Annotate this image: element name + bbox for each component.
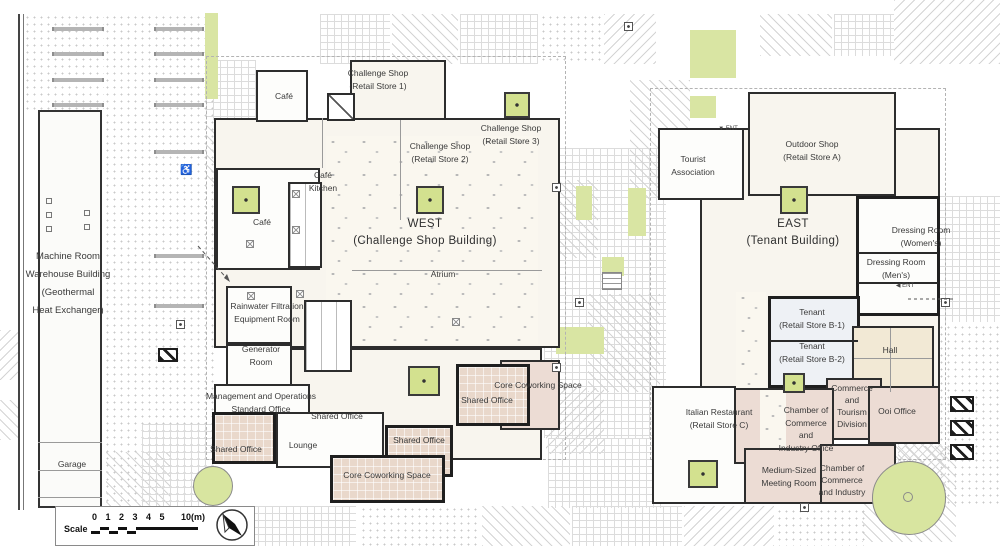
column-marker [941, 298, 950, 307]
hatched-box [950, 396, 974, 412]
room-label-cafe-top: Café [259, 90, 309, 103]
east-dressing-partition [858, 252, 938, 254]
room-label-east-title: EAST (Tenant Building) [713, 216, 873, 250]
texture-bottom-band [776, 508, 866, 546]
room-label-machine-room: Machine Room Warehouse Building (Geother… [8, 248, 128, 320]
column-marker [624, 22, 633, 31]
room-label-shared-office-a: Shared Office [297, 410, 377, 423]
room-label-garage: Garage [47, 458, 97, 471]
room-label-core-coworking-top: Core Coworking Space [483, 379, 593, 392]
room-label-tenant-b2: Tenant (Retail Store B-2) [757, 340, 867, 366]
hatched-box [950, 420, 974, 436]
room-label-ooi-office: Ooi Office [862, 405, 932, 418]
north-arrow-icon [212, 505, 252, 545]
vent-marker [292, 226, 300, 234]
accessible-parking-icon: ♿ [180, 165, 192, 176]
warehouse-door-mark [46, 198, 52, 204]
texture-bottom-band [482, 506, 570, 546]
column-marker [176, 320, 185, 329]
planter-box [783, 373, 805, 393]
tree-circle [193, 466, 233, 506]
warehouse-door-mark [84, 210, 90, 216]
warehouse-door-mark [46, 212, 52, 218]
room-label-tenant-b1: Tenant (Retail Store B-1) [757, 306, 867, 332]
planting-area [576, 186, 592, 220]
texture-bottom-band [684, 506, 774, 546]
column-marker [575, 298, 584, 307]
room-label-challenge-shop-1: Challenge Shop (Retail Store 1) [328, 67, 428, 93]
warehouse-partition [38, 442, 102, 443]
vent-marker [452, 318, 460, 326]
texture-bottom-band [572, 506, 682, 546]
planter-box [688, 460, 718, 488]
column-marker [552, 183, 561, 192]
room-label-hall: Hall [865, 344, 915, 357]
corridor-stairs [602, 272, 622, 290]
texture-plaza [760, 14, 832, 56]
parking-stall [52, 78, 104, 82]
room-label-dressing-men: Dressing Room (Men's) [846, 256, 946, 282]
parking-stall [52, 52, 104, 56]
vent-marker [247, 292, 255, 300]
texture-bottom-band [360, 506, 480, 546]
planter-box [408, 366, 440, 396]
west-shared-office-left [212, 412, 276, 464]
column-marker [552, 363, 561, 372]
parking-stall [154, 52, 204, 56]
room-label-cafe-kitchen: Café Kitchen [293, 169, 353, 195]
scale-segment [118, 527, 127, 530]
planter-box [504, 92, 530, 118]
vent-marker [296, 290, 304, 298]
planter-box [232, 186, 260, 214]
planter-box [780, 186, 808, 214]
texture-plaza [894, 0, 1000, 64]
parking-stall [154, 103, 204, 107]
warehouse-door-mark [46, 226, 52, 232]
scale-segment [100, 527, 109, 530]
room-label-rainwater: Rainwater Filtration Equipment Room [207, 300, 327, 326]
scale-max-label: 10(m) [181, 512, 205, 522]
west-partition [322, 118, 323, 168]
room-label-outdoor-shop: Outdoor Shop (Retail Store A) [757, 138, 867, 164]
parking-stall [154, 150, 204, 154]
warehouse-door-mark [84, 224, 90, 230]
room-label-dressing-women: Dressing Room (Women's) [871, 224, 971, 250]
parking-stall [154, 27, 204, 31]
scale-segment [127, 531, 136, 534]
warehouse-partition [38, 497, 102, 498]
room-label-west-title: WEST (Challenge Shop Building) [335, 216, 515, 250]
room-label-challenge-shop-3: Challenge Shop (Retail Store 3) [456, 122, 566, 148]
room-label-cafe-left: Café [237, 216, 287, 229]
hatched-box [158, 348, 178, 362]
planter-box [416, 186, 444, 214]
parking-stall [154, 304, 204, 308]
vent-marker [246, 240, 254, 248]
texture-plaza [834, 14, 894, 56]
planting-area [628, 188, 646, 236]
room-label-chamber-2: Chamber of Commerce and Industry [792, 462, 892, 498]
parking-stall [52, 103, 104, 107]
column-marker [800, 503, 809, 512]
room-label-lounge: Lounge [273, 439, 333, 452]
west-skylight-box [327, 93, 355, 121]
room-label-core-coworking-bottom: Core Coworking Space [327, 469, 447, 482]
room-label-shared-office-left: Shared Office [196, 443, 276, 456]
entrance-label: ▼ ENT [716, 126, 740, 133]
tree-center-mark [903, 492, 913, 502]
scale-bar-rule [136, 527, 198, 530]
scale-segment [91, 531, 100, 534]
room-label-chamber-office: Chamber of Commerce and Industry Office [756, 404, 856, 454]
parking-stall [52, 27, 104, 31]
hatched-box [950, 444, 974, 460]
room-label-generator: Generator Room [221, 343, 301, 369]
entrance-label: ◀ ENT [890, 283, 920, 290]
parking-stall [154, 254, 204, 258]
room-label-atrium: Atrium [418, 268, 468, 281]
scale-label: Scale [64, 524, 88, 534]
scale-segment [109, 531, 118, 534]
room-label-shared-office-right: Shared Office [447, 394, 527, 407]
planting-area [690, 30, 736, 78]
room-label-tourist: Tourist Association [648, 153, 738, 179]
parking-stall [154, 78, 204, 82]
site-floor-plan: ♿ [0, 0, 1000, 558]
west-partition [400, 120, 401, 220]
room-label-shared-office-mid: Shared Office [379, 434, 459, 447]
east-hall-partition [890, 328, 891, 392]
texture-left-edge [0, 330, 18, 380]
texture-left-edge [0, 400, 18, 440]
scale-ticks: 0 1 2 3 4 5 [92, 512, 168, 522]
